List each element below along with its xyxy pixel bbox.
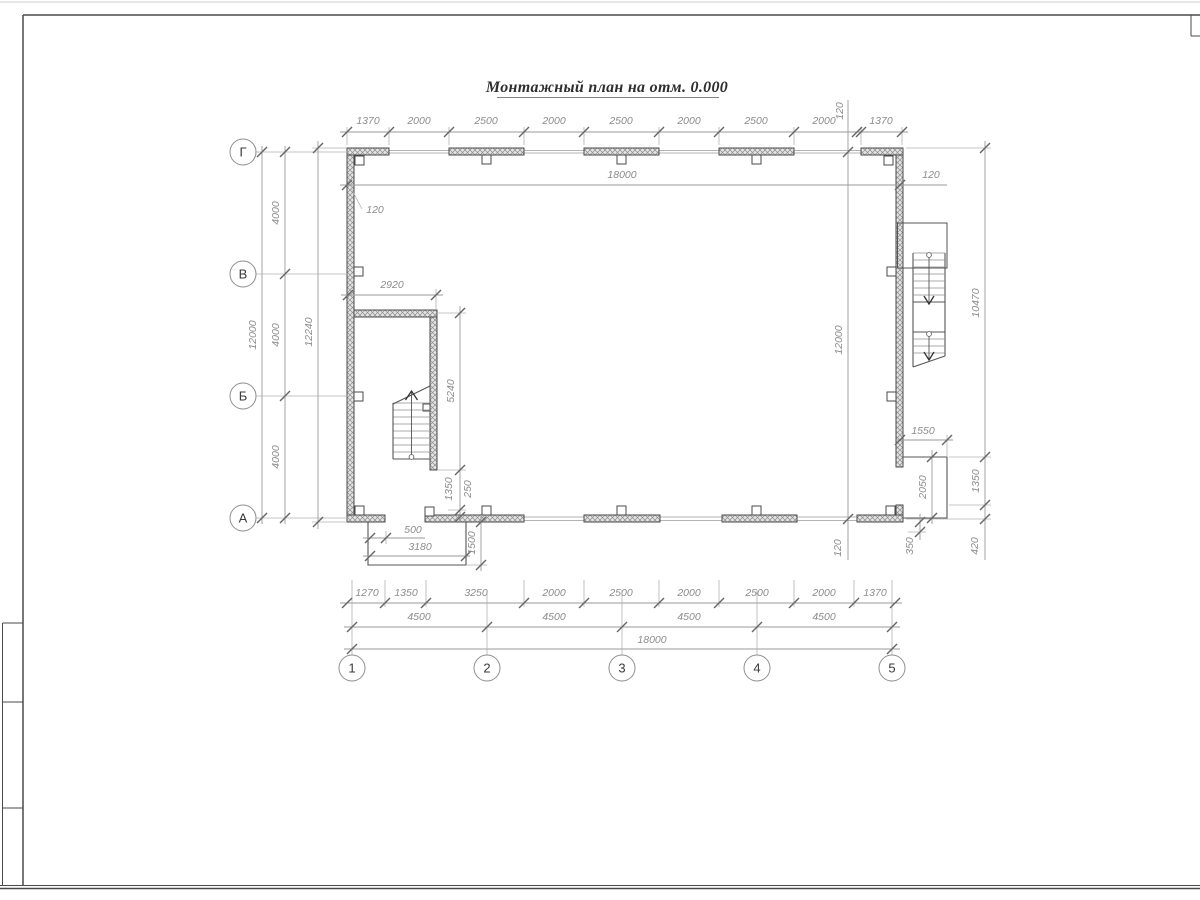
dim-label: 12240: [303, 317, 315, 346]
dim-label: 2500: [743, 115, 768, 127]
dimension-lines: [256, 100, 991, 655]
wall-bottom-5: [857, 515, 903, 522]
stair-right: [898, 223, 948, 367]
column: [884, 156, 893, 165]
axis-label: В: [239, 267, 248, 282]
axis-label: Г: [239, 145, 246, 160]
column: [752, 155, 761, 164]
column: [354, 392, 363, 401]
dim-label: 12000: [833, 325, 845, 354]
column: [355, 156, 364, 165]
dim-label: 420: [969, 537, 981, 555]
dim-label: 1350: [443, 477, 455, 501]
dim-label: 4500: [407, 611, 431, 623]
dim-label: 5240: [445, 379, 457, 403]
column: [617, 155, 626, 164]
title-block-edge-strips: [3, 623, 24, 886]
dim-label: 120: [366, 204, 384, 216]
partition-horizontal: [354, 310, 437, 317]
axis-label: 5: [888, 661, 895, 676]
dim-label: 4000: [270, 323, 282, 347]
walls: [347, 148, 903, 522]
axis-label: Б: [239, 389, 248, 404]
dim-label: 1550: [911, 425, 935, 437]
floor-plan-sheet: Монтажный план на отм. 0.000: [0, 0, 1200, 900]
sheet-frame: [0, 2, 1200, 889]
dim-label: 4500: [542, 611, 566, 623]
wall-bottom-3: [584, 515, 660, 522]
dim-label: 2500: [473, 115, 498, 127]
dim-label: 250: [462, 480, 474, 499]
dim-label: 1500: [466, 531, 478, 555]
porches: [368, 457, 947, 565]
dim-label: 1350: [394, 587, 418, 599]
dim-label: 4500: [677, 611, 701, 623]
dim-label: 1270: [355, 587, 379, 599]
dim-label: 350: [904, 537, 916, 555]
dim-label: 500: [404, 524, 422, 536]
column: [354, 267, 363, 276]
dim-label: 4000: [270, 201, 282, 225]
axis-markers: Г В Б А 1 2 3 4 5: [230, 139, 905, 681]
column: [355, 506, 364, 515]
wall-top-4: [719, 148, 794, 155]
page-title: Монтажный план на отм. 0.000: [485, 79, 728, 96]
dim-label: 2000: [811, 587, 836, 599]
dim-label: 10470: [970, 288, 982, 317]
axis-label: 4: [753, 661, 760, 676]
dim-label: 2500: [608, 115, 633, 127]
column: [617, 506, 626, 515]
dim-label: 4500: [812, 611, 836, 623]
column: [886, 506, 895, 515]
wall-top-1: [347, 148, 389, 155]
dim-label: 2500: [744, 587, 769, 599]
dim-label: 2000: [676, 115, 701, 127]
axis-label: 3: [618, 661, 625, 676]
column: [887, 267, 896, 276]
dim-label: 2000: [406, 115, 431, 127]
stair-landing-top: [898, 223, 948, 268]
column: [887, 392, 896, 401]
dim-label: 18000: [607, 169, 636, 181]
dim-label: 2000: [541, 587, 566, 599]
dim-label: 120: [832, 539, 844, 557]
axis-label: А: [239, 511, 248, 526]
wall-left: [347, 148, 354, 522]
column: [482, 506, 491, 515]
dim-label: 1370: [356, 115, 380, 127]
dim-label: 4000: [270, 445, 282, 469]
dim-label: 1370: [869, 115, 893, 127]
stair-left: [393, 386, 430, 459]
dim-label: 120: [922, 169, 940, 181]
dim-label: 3250: [464, 587, 488, 599]
column: [482, 155, 491, 164]
drawing-title: Монтажный план на отм. 0.000: [485, 79, 728, 98]
dim-label: 1350: [970, 469, 982, 493]
dim-label: 3180: [408, 541, 432, 553]
wall-bottom-1: [347, 515, 385, 522]
dim-label: 12000: [247, 320, 259, 349]
wall-top-3: [584, 148, 659, 155]
wall-right: [896, 148, 903, 467]
wall-bottom-4: [722, 515, 797, 522]
dim-label: 1370: [863, 587, 887, 599]
axis-label: 1: [348, 661, 355, 676]
dim-label: 2000: [811, 115, 836, 127]
dimension-labels: 1370 2000 2500 2000 2500 2000 2500 2000 …: [247, 102, 982, 646]
dim-label: 2000: [676, 587, 701, 599]
wall-bottom-2: [425, 515, 524, 522]
dim-label: 2050: [917, 475, 929, 500]
axis-label: 2: [483, 661, 490, 676]
wall-top-2: [449, 148, 524, 155]
column: [752, 506, 761, 515]
dim-label: 2500: [608, 587, 633, 599]
dim-label: 2000: [541, 115, 566, 127]
dim-label: 18000: [637, 634, 666, 646]
partition-vertical: [430, 317, 437, 470]
door-jamb-column: [425, 507, 434, 516]
wall-top-5: [861, 148, 903, 155]
dim-label: 2920: [379, 279, 404, 291]
dim-label: 120: [834, 102, 846, 120]
